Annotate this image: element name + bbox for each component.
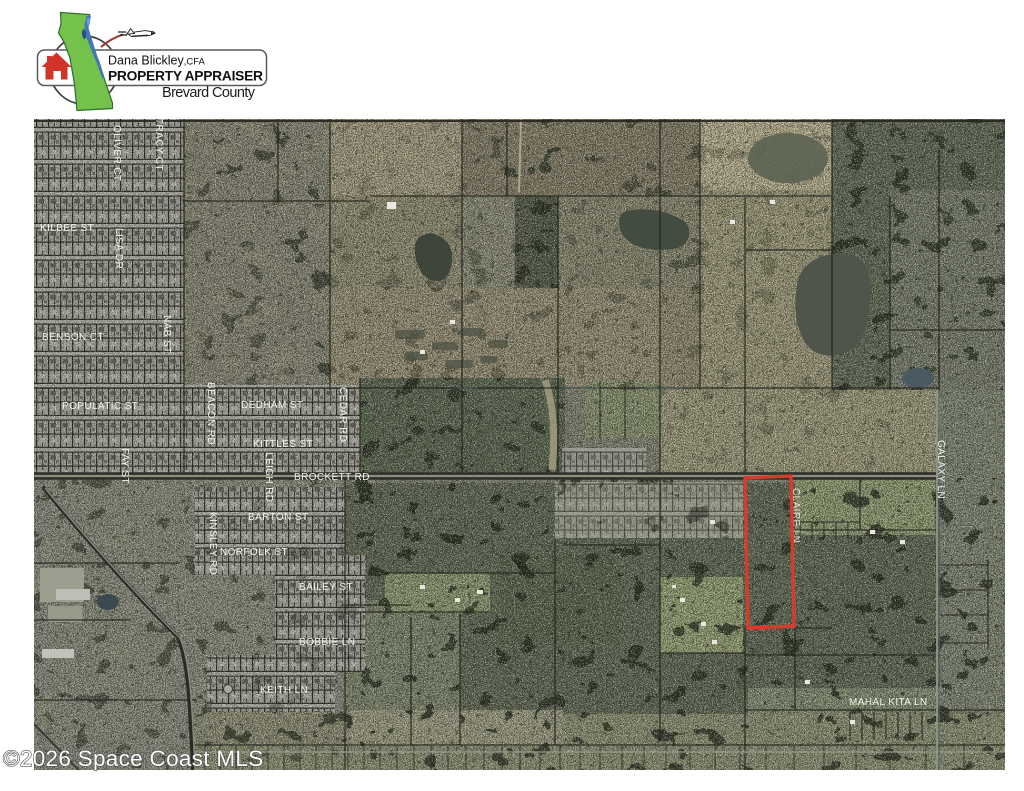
svg-text:PROPERTY APPRAISER: PROPERTY APPRAISER: [108, 69, 263, 84]
svg-text:LISA DR: LISA DR: [113, 228, 124, 269]
svg-text:KITTLES ST: KITTLES ST: [253, 439, 313, 450]
svg-text:BOBBIE LN: BOBBIE LN: [299, 637, 355, 648]
svg-text:BENSON CT: BENSON CT: [42, 332, 104, 343]
svg-text:BAILEY ST: BAILEY ST: [299, 582, 353, 593]
svg-text:KINSLEY RD: KINSLEY RD: [207, 512, 218, 575]
svg-text:MAHAL KITA LN: MAHAL KITA LN: [849, 697, 928, 708]
svg-text:CEDAR RD: CEDAR RD: [337, 387, 348, 442]
svg-text:POPULATIC ST: POPULATIC ST: [62, 401, 138, 412]
svg-text:NORFOLK ST: NORFOLK ST: [220, 547, 288, 558]
svg-text:KEITH LN: KEITH LN: [260, 685, 308, 696]
svg-text:©2026 Space Coast MLS: ©2026 Space Coast MLS: [3, 746, 264, 771]
svg-text:FAY ST: FAY ST: [119, 448, 130, 484]
svg-text:NAB ST: NAB ST: [161, 315, 172, 354]
svg-text:OLIVER CT: OLIVER CT: [111, 125, 122, 181]
svg-text:Brevard County: Brevard County: [162, 85, 256, 101]
svg-text:BARTON ST: BARTON ST: [248, 512, 308, 523]
svg-text:BEACON RD: BEACON RD: [205, 382, 216, 445]
svg-text:KILBEE ST: KILBEE ST: [40, 223, 94, 234]
svg-text:Dana Blickley,CFA: Dana Blickley,CFA: [108, 54, 206, 68]
svg-text:BROCKETT RD: BROCKETT RD: [294, 472, 370, 483]
svg-text:LEIGH RD: LEIGH RD: [263, 452, 274, 502]
svg-text:GALAXY LN: GALAXY LN: [935, 440, 946, 499]
svg-text:TRACY CT: TRACY CT: [153, 118, 164, 171]
svg-text:DEDHAM ST: DEDHAM ST: [241, 400, 304, 411]
